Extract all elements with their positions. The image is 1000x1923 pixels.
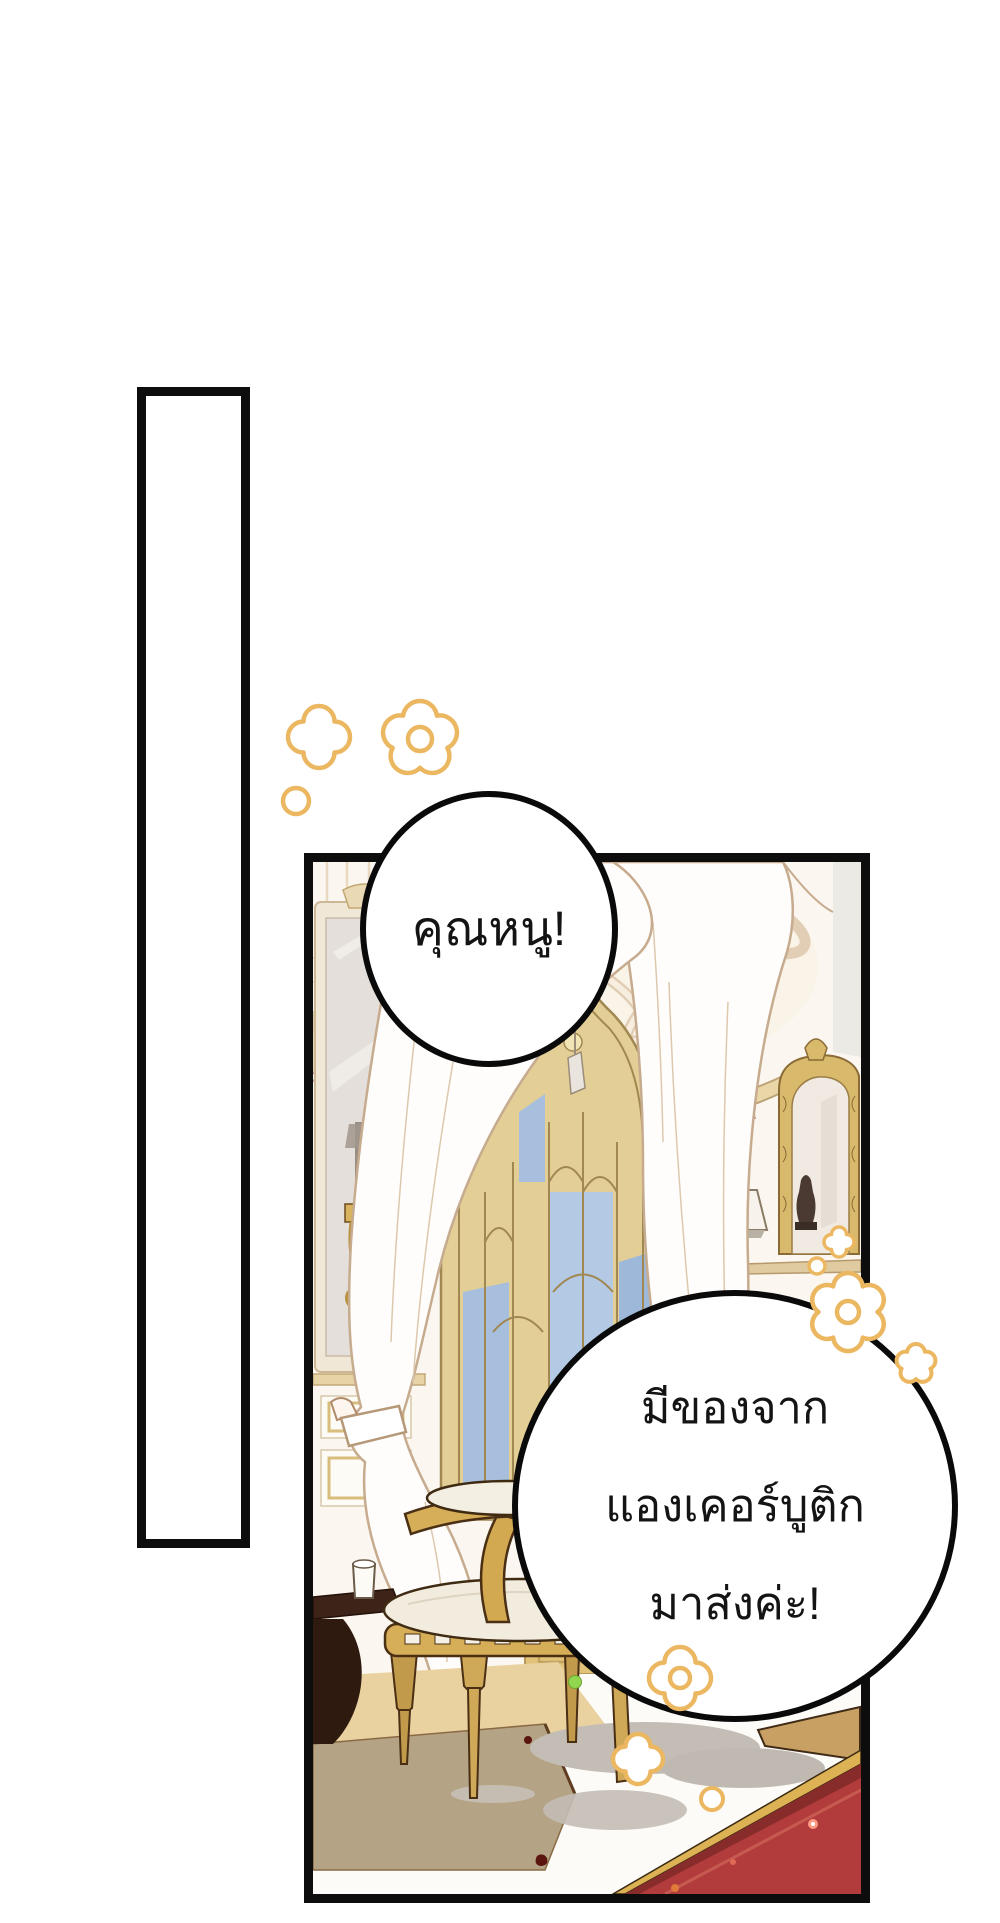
- sparkle-dots: [569, 1676, 582, 1689]
- speech-bubble-exclaim: คุณหนู!: [360, 791, 618, 1067]
- speech-bubble-delivery: มีของจาก แองเคอร์บูติก มาส่งค่ะ!: [512, 1290, 958, 1722]
- empty-vertical-panel: [137, 387, 250, 1548]
- speech-text-delivery-line3: มาส่งค่ะ!: [605, 1555, 865, 1653]
- comic-page: คุณหนู! มีของจาก แองเคอร์บูติก มาส่งค่ะ!: [0, 0, 1000, 1923]
- ring-sparkle-icon: [283, 788, 309, 814]
- speech-text-delivery-line1: มีของจาก: [605, 1359, 865, 1457]
- speech-text-delivery-line2: แองเคอร์บูติก: [605, 1457, 865, 1555]
- speech-text-delivery: มีของจาก แองเคอร์บูติก มาส่งค่ะ!: [605, 1359, 865, 1653]
- flower-sparkle-icon: [288, 706, 350, 768]
- flower-sparkle-icon: [383, 701, 457, 773]
- speech-text-exclaim: คุณหนู!: [412, 891, 566, 967]
